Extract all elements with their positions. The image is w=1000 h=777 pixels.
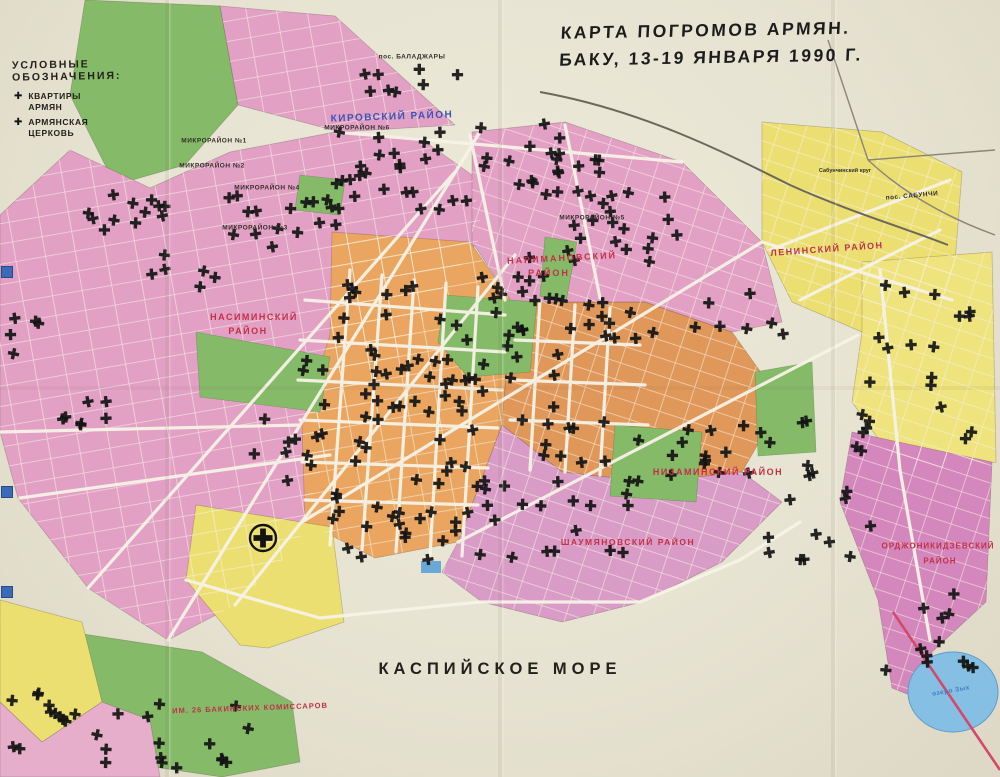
map-label: ШАУМЯНОВСКИЙ РАЙОН	[561, 537, 695, 547]
sea-label: КАСПИЙСКОЕ МОРЕ	[330, 660, 670, 679]
pogrom-marker	[418, 79, 430, 91]
cross-icon: ✚	[14, 92, 22, 102]
map-label: МИКРОРАЙОН №3	[222, 225, 287, 232]
map-label: Сабунчинский круг	[819, 168, 871, 174]
pogrom-marker	[777, 328, 790, 341]
legend-heading: УСЛОВНЫЕ ОБОЗНАЧЕНИЯ:	[12, 56, 202, 83]
paper-fold	[0, 386, 1000, 390]
legend: УСЛОВНЫЕ ОБОЗНАЧЕНИЯ: ✚ КВАРТИРЫ АРМЯН ✚…	[12, 58, 202, 144]
pogrom-marker	[763, 532, 775, 544]
cross-icon: ✚	[14, 118, 22, 128]
baku-pogrom-map: КАРТА ПОГРОМОВ АРМЯН. БАКУ, 13-19 ЯНВАРЯ…	[0, 0, 1000, 777]
park-east	[755, 362, 816, 456]
map-label: НАСИМИНСКИЙ	[210, 312, 298, 322]
legend-item-apartments: ✚ КВАРТИРЫ АРМЯН	[12, 91, 202, 112]
map-label: РАЙОН	[528, 268, 570, 278]
edge-marker	[1, 586, 13, 598]
pogrom-marker	[844, 550, 857, 563]
map-label: МИКРОРАЙОН №4	[234, 185, 299, 192]
church-marker-layer	[250, 525, 276, 551]
map-label: МИКРОРАЙОН №2	[179, 163, 244, 170]
pogrom-marker	[784, 494, 796, 506]
map-label: МИКРОРАЙОН №1	[181, 138, 246, 145]
map-title: КАРТА ПОГРОМОВ АРМЯН. БАКУ, 13-19 ЯНВАРЯ…	[559, 12, 992, 74]
map-label: пос. БАЛАДЖАРЫ	[379, 54, 446, 61]
pogrom-marker	[452, 69, 463, 80]
pogrom-marker	[763, 546, 776, 559]
edge-marker	[1, 486, 13, 498]
park-center-east	[610, 425, 702, 502]
harbor-basin	[421, 561, 441, 573]
map-label: РАЙОН	[923, 557, 956, 566]
map-label: МИКРОРАЙОН №5	[559, 215, 624, 222]
map-label: ОРДЖОНИКИДЗЕВСКИЙ	[881, 542, 994, 551]
edge-marker	[1, 266, 13, 278]
pogrom-marker	[434, 127, 446, 139]
legend-item-label: АРМЯНСКАЯ ЦЕРКОВЬ	[28, 117, 88, 138]
map-label: МИКРОРАЙОН №6	[324, 125, 389, 132]
map-label: РАЙОН	[228, 326, 267, 336]
legend-item-church: ✚ АРМЯНСКАЯ ЦЕРКОВЬ	[12, 117, 202, 138]
legend-item-label: КВАРТИРЫ АРМЯН	[28, 91, 81, 112]
map-label: НИЗАМИНСКИЙ РАЙОН	[653, 467, 783, 477]
pogrom-marker	[810, 528, 822, 540]
pogrom-marker	[414, 64, 425, 75]
